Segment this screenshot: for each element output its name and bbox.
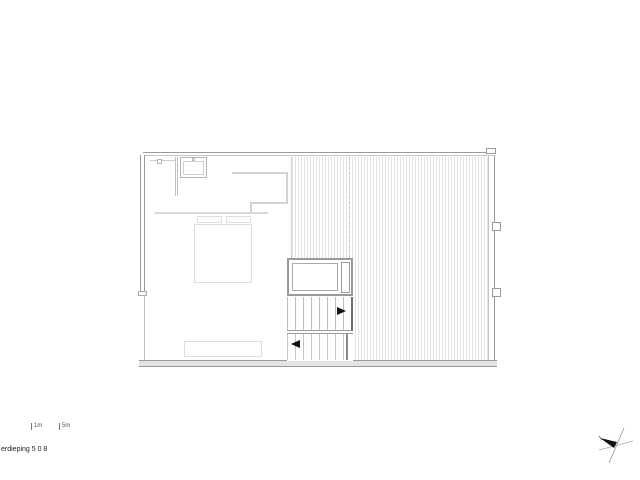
wall-right: [488, 156, 495, 361]
low-cabinet: [184, 341, 262, 357]
north-arrow-icon: [596, 426, 636, 466]
lift-car: [292, 263, 338, 291]
roof-window-marker: [192, 158, 195, 161]
wall-anchor-tab: [492, 222, 501, 231]
bed: [194, 224, 252, 283]
skylight-line: [150, 157, 175, 161]
gutter-dashed-line: [349, 157, 350, 258]
floor-plan-sheet: 1m 5m erdieping 5 0 8: [0, 0, 640, 480]
stair-direction-right-arrow-icon: [337, 307, 346, 315]
wall-top: [143, 152, 496, 156]
stair-direction-left-arrow-icon: [291, 340, 300, 348]
wall-top-right-notch: [486, 148, 496, 154]
closet-wall-segment: [286, 172, 288, 204]
partition-wall: [175, 157, 178, 196]
scale-mark-5m: 5m: [59, 423, 70, 430]
pillow: [197, 216, 222, 223]
roof-window-inner-frame: [183, 161, 204, 175]
closet-wall-segment: [232, 172, 288, 174]
wall-left-cap: [138, 291, 147, 296]
skylight-marker: [157, 159, 162, 164]
headboard-shelf: [155, 212, 268, 214]
wall-left-thin-line: [144, 296, 145, 361]
scale-mark-1m: 1m: [31, 423, 42, 430]
lift-door-slot: [341, 262, 350, 293]
wall-left: [140, 155, 145, 296]
wall-bottom: [139, 360, 497, 367]
pillow: [226, 216, 251, 223]
plan-title: erdieping 5 0 8: [1, 446, 47, 454]
wall-anchor-tab: [492, 288, 501, 297]
closet-wall-segment: [250, 202, 288, 204]
